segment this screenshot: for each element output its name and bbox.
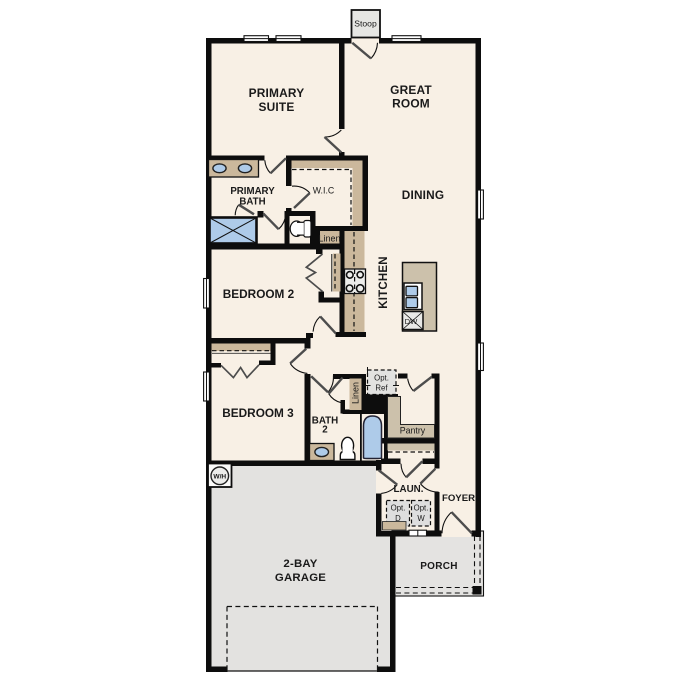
svg-text:KITCHEN: KITCHEN bbox=[378, 256, 390, 309]
svg-text:PORCH: PORCH bbox=[420, 561, 458, 572]
svg-text:SUITE: SUITE bbox=[258, 100, 294, 114]
svg-text:Linen: Linen bbox=[351, 382, 361, 404]
svg-text:Ref: Ref bbox=[375, 384, 388, 393]
svg-text:PRIMARY: PRIMARY bbox=[249, 86, 305, 100]
svg-text:2-BAY: 2-BAY bbox=[283, 558, 317, 570]
svg-text:DW: DW bbox=[405, 317, 418, 326]
svg-text:LAUN.: LAUN. bbox=[394, 484, 424, 495]
svg-text:GREAT: GREAT bbox=[390, 83, 432, 97]
svg-text:FOYER: FOYER bbox=[442, 493, 475, 504]
svg-text:ROOM: ROOM bbox=[392, 97, 430, 111]
svg-text:Pantry: Pantry bbox=[400, 426, 426, 436]
svg-text:BATH: BATH bbox=[239, 196, 265, 207]
svg-text:GARAGE: GARAGE bbox=[275, 572, 326, 584]
svg-text:Opt.: Opt. bbox=[391, 504, 406, 513]
svg-text:W.I.C: W.I.C bbox=[313, 186, 335, 196]
svg-text:DINING: DINING bbox=[402, 188, 445, 202]
svg-text:BEDROOM 3: BEDROOM 3 bbox=[222, 406, 294, 420]
svg-text:Stoop: Stoop bbox=[354, 19, 377, 29]
svg-text:2: 2 bbox=[322, 425, 328, 436]
svg-text:W: W bbox=[417, 514, 425, 523]
svg-text:W/H: W/H bbox=[213, 473, 226, 480]
svg-text:BEDROOM 2: BEDROOM 2 bbox=[223, 287, 295, 301]
svg-text:Opt.: Opt. bbox=[414, 504, 429, 513]
svg-text:Linen: Linen bbox=[318, 234, 340, 244]
svg-text:Opt.: Opt. bbox=[374, 374, 389, 383]
